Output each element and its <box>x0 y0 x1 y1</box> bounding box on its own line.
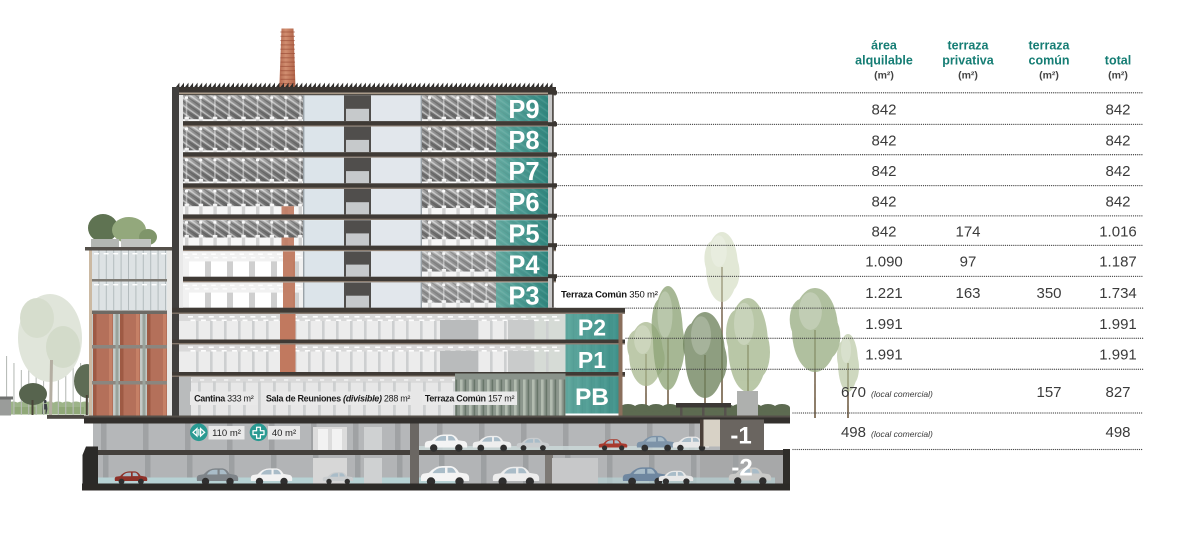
svg-text:842: 842 <box>871 132 896 149</box>
svg-text:P9: P9 <box>508 96 539 124</box>
svg-text:827: 827 <box>1105 384 1130 401</box>
svg-text:P7: P7 <box>508 158 539 186</box>
svg-text:PB: PB <box>575 384 609 411</box>
svg-text:40 m²: 40 m² <box>272 428 296 439</box>
svg-text:-2: -2 <box>731 455 752 482</box>
svg-text:privativa: privativa <box>942 54 994 68</box>
svg-text:terraza: terraza <box>948 39 990 53</box>
svg-text:P6: P6 <box>508 189 539 217</box>
svg-text:498: 498 <box>1105 424 1130 441</box>
svg-text:670: 670 <box>841 384 866 401</box>
svg-text:área: área <box>871 39 898 53</box>
svg-text:842: 842 <box>1105 101 1130 118</box>
svg-text:1.991: 1.991 <box>865 316 903 333</box>
svg-text:P2: P2 <box>578 315 606 341</box>
svg-text:842: 842 <box>871 101 896 118</box>
svg-text:1.991: 1.991 <box>1099 316 1137 333</box>
svg-text:común: común <box>1029 54 1070 68</box>
svg-text:alquilable: alquilable <box>855 54 913 68</box>
svg-text:498: 498 <box>841 424 866 441</box>
svg-text:157: 157 <box>1036 384 1061 401</box>
svg-text:total: total <box>1105 54 1131 68</box>
svg-text:(m²): (m²) <box>958 70 978 82</box>
svg-text:1.734: 1.734 <box>1099 285 1137 302</box>
svg-text:842: 842 <box>1105 163 1130 180</box>
svg-text:1.991: 1.991 <box>865 347 903 364</box>
svg-text:842: 842 <box>871 194 896 211</box>
svg-text:Terraza Común 157 m²: Terraza Común 157 m² <box>425 394 515 404</box>
svg-text:842: 842 <box>1105 132 1130 149</box>
svg-text:(m²): (m²) <box>874 70 894 82</box>
svg-text:350: 350 <box>1036 285 1061 302</box>
svg-text:97: 97 <box>960 254 977 271</box>
svg-text:P8: P8 <box>508 127 539 155</box>
svg-text:1.221: 1.221 <box>865 285 903 302</box>
svg-text:(m²): (m²) <box>1108 70 1128 82</box>
svg-text:(m²): (m²) <box>1039 70 1059 82</box>
svg-text:1.991: 1.991 <box>1099 347 1137 364</box>
svg-text:842: 842 <box>1105 194 1130 211</box>
svg-text:Terraza Común 350 m²: Terraza Común 350 m² <box>561 290 658 301</box>
svg-text:110 m²: 110 m² <box>212 428 241 439</box>
svg-text:1.090: 1.090 <box>865 254 903 271</box>
svg-text:Cantina 333 m²: Cantina 333 m² <box>194 394 254 404</box>
svg-text:1.016: 1.016 <box>1099 223 1137 240</box>
svg-text:(local comercial): (local comercial) <box>871 429 933 439</box>
svg-text:1.187: 1.187 <box>1099 254 1137 271</box>
svg-text:P4: P4 <box>508 252 540 280</box>
svg-text:163: 163 <box>955 285 980 302</box>
svg-text:(local comercial): (local comercial) <box>871 389 933 399</box>
svg-text:P1: P1 <box>578 347 606 373</box>
svg-text:842: 842 <box>871 223 896 240</box>
svg-text:Sala de Reuniones (divisible): Sala de Reuniones (divisible) 288 m² <box>266 394 411 404</box>
svg-text:-1: -1 <box>730 423 751 450</box>
svg-text:terraza: terraza <box>1029 39 1071 53</box>
svg-text:842: 842 <box>871 163 896 180</box>
svg-text:P3: P3 <box>508 283 539 311</box>
svg-text:P5: P5 <box>508 220 539 248</box>
svg-text:174: 174 <box>955 223 980 240</box>
